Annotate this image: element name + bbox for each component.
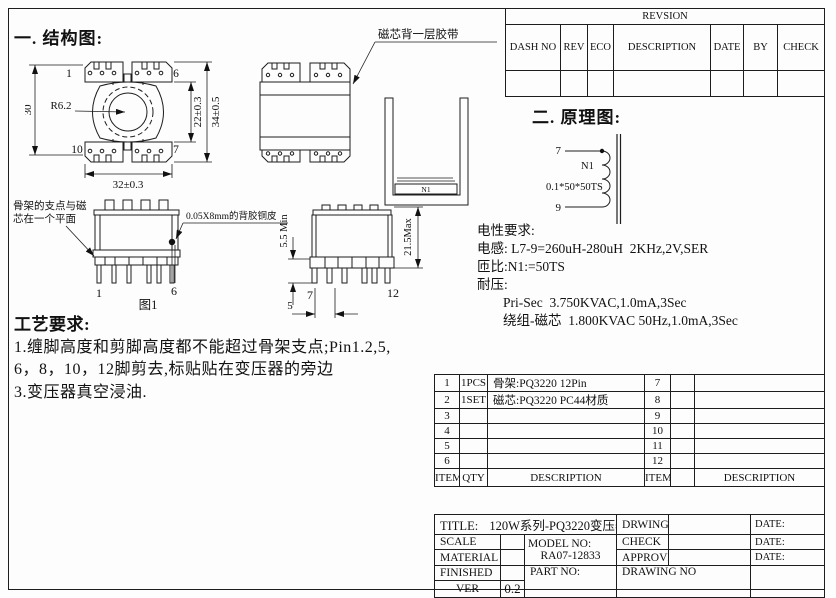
bom-footer-blank: [671, 469, 695, 487]
revision-col-eco: ECO: [588, 25, 614, 71]
bom-table: 1 1PCS 骨架:PQ3220 12Pin 7 2 1SET 磁芯:PQ322…: [434, 374, 825, 487]
process-title: 工艺要求:: [14, 314, 444, 337]
revision-table: REVSION DASH NO REV ECO DESCRIPTION DATE…: [505, 8, 825, 97]
revision-col-description: DESCRIPTION: [614, 25, 711, 71]
bom-cell: 磁芯:PQ3220 PC44材质: [488, 392, 645, 409]
bom-cell: 5: [435, 439, 460, 454]
bom-row-2: 2 1SET 磁芯:PQ3220 PC44材质 8: [435, 392, 825, 409]
bom-cell: 6: [435, 454, 460, 469]
process-line-2: 6，8，10，12脚剪去,标贴贴在变压器的旁边: [14, 359, 444, 382]
front-view-body: [260, 63, 350, 162]
scale-value-cell: [501, 535, 525, 550]
sv2-pin-7-label: 7: [307, 288, 313, 302]
note-leaders: [66, 223, 288, 256]
dim-pitch-5-label: 5: [287, 300, 293, 312]
sv1-pin-6-label: 6: [171, 284, 177, 298]
title-block: TITLE: 120W系列-PQ3220变压器 DRWING DATE: SCA…: [434, 514, 825, 598]
title-value: 120W系列-PQ3220变压器: [489, 519, 616, 533]
model-no-value: RA07-12833: [525, 550, 616, 562]
model-no-label: MODEL NO:: [525, 538, 616, 550]
material-value-cell: [501, 550, 525, 566]
title-block-row-title: TITLE: 120W系列-PQ3220变压器 DRWING DATE:: [435, 515, 825, 535]
date-label-2: DATE:: [751, 535, 825, 550]
dim-22-label: 22±0.3: [192, 96, 204, 127]
ver-label: VER: [435, 581, 501, 598]
electrical-hipot-title: 耐压:: [477, 276, 822, 294]
pin-1-label: 1: [66, 68, 72, 80]
bom-footer-item2: ITEM: [645, 469, 671, 487]
bom-row-4: 4 10: [435, 424, 825, 439]
revision-title: REVSION: [506, 9, 825, 25]
bom-cell: 12: [645, 454, 671, 469]
top-pin-blocks: [85, 62, 172, 82]
copper-foil-dot: [169, 239, 175, 245]
process-line-3: 3.变压器真空浸油.: [14, 382, 444, 405]
bom-cell: [488, 439, 645, 454]
bom-cell: [460, 454, 488, 469]
dim-215max-label: 21.5Max: [403, 217, 414, 255]
title-block-row-material: MATERIAL APPROVE DATE:: [435, 550, 825, 566]
drawing-no-cell: DRAWING NO: [617, 566, 751, 598]
date-label-3: DATE:: [751, 550, 825, 566]
bobbin-top-view-drawing: 30 22±0.3 34±0.5 32±0.3 R6.2 1 6 10 7: [25, 52, 230, 194]
figure-1-caption: 图1: [139, 298, 158, 312]
electrical-title: 电性要求:: [477, 222, 822, 240]
bom-cell: [488, 409, 645, 424]
bottom-pin-blocks: [85, 142, 172, 162]
core-label-view-drawing: N1: [383, 95, 473, 210]
wire-spec-label: 0.1*50*50TS: [546, 182, 603, 193]
bom-cell: 9: [645, 409, 671, 424]
bom-cell: 3: [435, 409, 460, 424]
model-no-cell: MODEL NO: RA07-12833: [525, 535, 617, 566]
part-no-cell: PART NO:: [525, 566, 617, 598]
tape-note-leader: [353, 42, 497, 84]
process-line-1: 1.缠脚高度和剪脚高度都不能超过骨架支点;Pin1.2,5,: [14, 337, 444, 360]
copper-foil-note: 0.05X8mm的背胶铜皮: [186, 210, 277, 222]
bom-footer-row: ITEM QTY DESCRIPTION ITEM DESCRIPTION: [435, 469, 825, 487]
dimension-lines: [29, 62, 212, 178]
bom-cell: 7: [645, 375, 671, 392]
approve-label: APPROVE: [617, 550, 669, 566]
bom-cell: [460, 409, 488, 424]
bom-cell: [488, 454, 645, 469]
dim-r62-label: R6.2: [50, 100, 71, 112]
sv2-pin-12-label: 12: [387, 286, 399, 300]
electrical-hipot-winding-core: 绕组-磁芯 1.800KVAC 50Hz,1.0mA,3Sec: [503, 312, 822, 330]
bom-cell: [671, 454, 695, 469]
check-label: CHECK: [617, 535, 669, 550]
support-note-line1: 骨架的支点与磁: [13, 199, 87, 212]
material-label: MATERIAL: [435, 550, 501, 566]
bom-footer-item: ITEM: [435, 469, 460, 487]
bom-row-5: 5 11: [435, 439, 825, 454]
electrical-requirements: 电性要求: 电感: L7-9=260uH-280uH 2KHz,2V,SER 匝…: [477, 222, 822, 330]
date-label-1: DATE:: [751, 515, 825, 535]
schematic-pin-9: 9: [556, 202, 562, 214]
bom-cell: [695, 392, 825, 409]
title-cell: TITLE: 120W系列-PQ3220变压器: [435, 515, 617, 535]
bom-footer-description2: DESCRIPTION: [695, 469, 825, 487]
bom-cell: [671, 375, 695, 392]
bobbin-barrel: [93, 82, 164, 142]
pin-6-label: 6: [173, 68, 179, 80]
dim-32-label: 32±0.3: [113, 179, 144, 191]
bom-cell: 1SET: [460, 392, 488, 409]
polarity-dot: [600, 149, 604, 153]
electrical-hipot-pri-sec: Pri-Sec 3.750KVAC,1.0mA,3Sec: [503, 294, 822, 312]
ver-value: 0.2: [501, 581, 525, 598]
bom-cell: [695, 439, 825, 454]
bom-cell: 骨架:PQ3220 12Pin: [488, 375, 645, 392]
bom-cell: 2: [435, 392, 460, 409]
electrical-turns-ratio: 匝比:N1:=50TS: [477, 258, 822, 276]
process-requirements: 工艺要求: 1.缠脚高度和剪脚高度都不能超过骨架支点;Pin1.2,5, 6，8…: [14, 314, 444, 404]
engineering-drawing-page: 一. 结构图: REVSION DASH NO REV ECO DESCRIPT…: [0, 0, 836, 598]
bom-cell: [695, 454, 825, 469]
revision-header-row: DASH NO REV ECO DESCRIPTION DATE BY CHEC…: [506, 25, 825, 71]
title-block-row-scale: SCALE MODEL NO: RA07-12833 CHECK DATE:: [435, 535, 825, 550]
title-block-row-finished: FINISHED PART NO: DRAWING NO: [435, 566, 825, 581]
bom-cell: [671, 439, 695, 454]
structure-section-heading: 一. 结构图:: [14, 24, 103, 49]
bom-cell: 10: [645, 424, 671, 439]
bom-cell: [695, 424, 825, 439]
pin-10-label: 10: [71, 144, 83, 156]
bom-cell: [695, 375, 825, 392]
scale-label: SCALE: [435, 535, 501, 550]
finished-value-cell: [501, 566, 525, 581]
bom-cell: 1: [435, 375, 460, 392]
support-note-line2: 芯在一个平面: [13, 212, 76, 225]
dim-30-label: 30: [25, 104, 34, 116]
drwing-label: DRWING: [617, 515, 669, 535]
bom-cell: 8: [645, 392, 671, 409]
bom-cell: 11: [645, 439, 671, 454]
side-view-1-body: [93, 200, 180, 283]
winding-schematic-drawing: 7 9 N1 0.1*50*50TS: [545, 126, 655, 234]
label-lines: [397, 178, 455, 181]
schematic-section-heading: 二. 原理图:: [532, 103, 621, 128]
revision-col-check: CHECK: [778, 25, 825, 71]
finished-label: FINISHED: [435, 566, 501, 581]
electrical-inductance: 电感: L7-9=260uH-280uH 2KHz,2V,SER: [477, 240, 822, 258]
schematic-pin-7: 7: [556, 145, 562, 157]
bom-row-1: 1 1PCS 骨架:PQ3220 12Pin 7: [435, 375, 825, 392]
side-view-2-body: [310, 205, 394, 283]
bom-cell: [671, 392, 695, 409]
revision-col-by: BY: [744, 25, 778, 71]
revision-empty-row: [506, 71, 825, 97]
core-n1-label: N1: [421, 185, 430, 194]
drawing-no-value-cell: [751, 566, 825, 598]
dim-34-label: 34±0.5: [210, 96, 222, 127]
bom-footer-description: DESCRIPTION: [488, 469, 645, 487]
bom-cell: [460, 439, 488, 454]
revision-col-date: DATE: [711, 25, 744, 71]
approve-value-cell: [669, 550, 751, 566]
revision-col-rev: REV: [561, 25, 588, 71]
title-label: TITLE:: [440, 519, 478, 533]
bom-row-6: 6 12: [435, 454, 825, 469]
bom-cell: [695, 409, 825, 424]
check-value-cell: [669, 535, 751, 550]
core-symbol: [617, 134, 621, 224]
bom-cell: 1PCS: [460, 375, 488, 392]
revision-title-row: REVSION: [506, 9, 825, 25]
bom-cell: 4: [435, 424, 460, 439]
bom-footer-qty: QTY: [460, 469, 488, 487]
bom-cell: [460, 424, 488, 439]
winding-n1-label: N1: [581, 161, 594, 172]
pin-7-label: 7: [173, 144, 179, 156]
bom-cell: [488, 424, 645, 439]
sv1-pin-1-label: 1: [96, 286, 102, 300]
drwing-value-cell: [669, 515, 751, 535]
bom-cell: [671, 409, 695, 424]
bom-row-3: 3 9: [435, 409, 825, 424]
dim-55min-label: 5.5 Min: [280, 214, 290, 248]
bom-cell: [671, 424, 695, 439]
tape-note-label: 磁芯背一层胶带: [378, 27, 459, 41]
side-view-1-drawing: 骨架的支点与磁 芯在一个平面 0.05X8mm的背胶铜皮 1 6 图1: [10, 195, 302, 317]
side-view-2-drawing: 5.5 Min 21.5Max 5 7 12: [280, 195, 430, 330]
winding-symbol: [565, 134, 621, 224]
